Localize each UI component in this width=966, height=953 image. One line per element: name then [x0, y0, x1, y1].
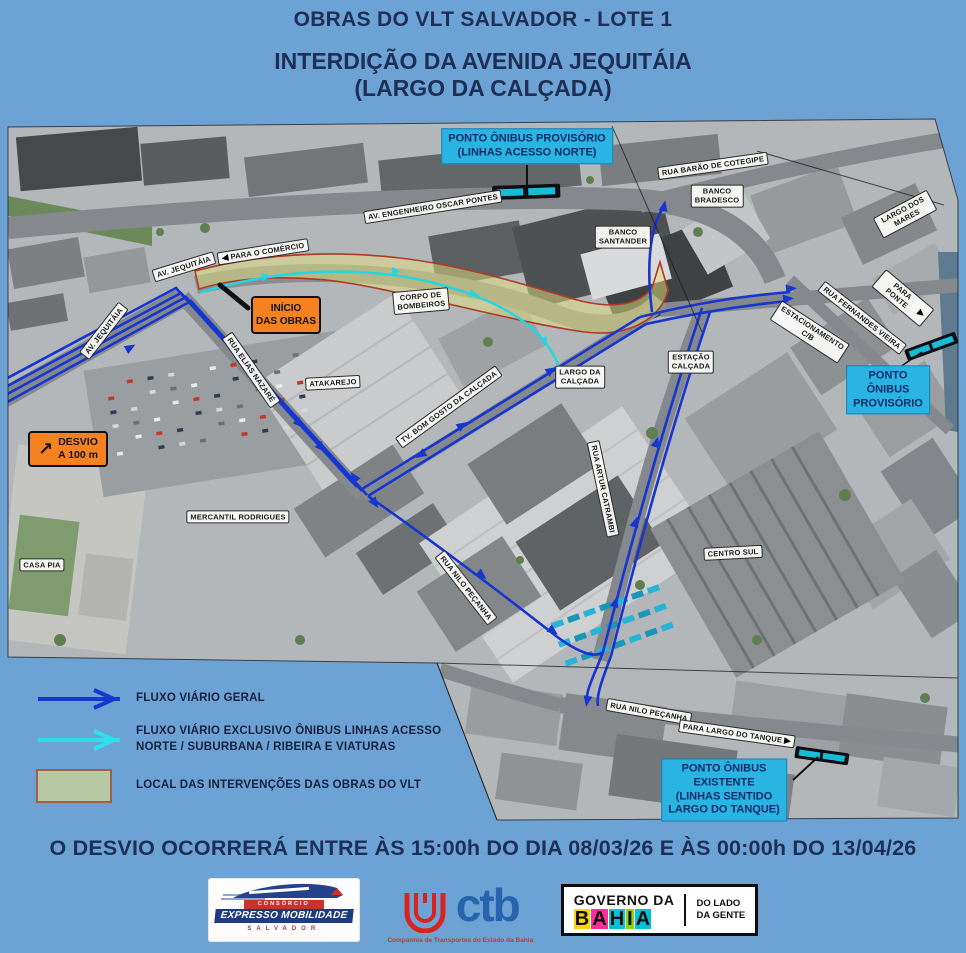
ctb-caption: Companhia de Transportes do Estado da Ba… [365, 937, 555, 944]
page-subtitle-2: (LARGO DA CALÇADA) [0, 75, 966, 102]
legend-item-general-flow: FLUXO VIÁRIO GERAL [36, 688, 471, 710]
governo-tagline: DO LADO DA GENTE [696, 898, 745, 923]
logo-governo-bahia: GOVERNO DA BAHIA DO LADO DA GENTE [561, 884, 758, 936]
blue-flow-arrow-icon [36, 688, 136, 710]
page-subtitle: INTERDIÇÃO DA AVENIDA JEQUITÁIA [0, 48, 966, 75]
footer-logos: CONSÓRCIO EXPRESSO MOBILIDADE SALVADOR c… [0, 878, 966, 942]
train-icon [219, 878, 349, 902]
bahia-wordmark: BAHIA [574, 909, 675, 929]
desvio-text: DESVIO A 100 m [58, 436, 98, 462]
legend: FLUXO VIÁRIO GERAL FLUXO VIÁRIO EXCLUSIV… [36, 688, 471, 817]
page-title: OBRAS DO VLT SALVADOR - LOTE 1 [0, 8, 966, 32]
ctb-wordmark: ctb [456, 882, 519, 928]
legend-item-intervention-zone: LOCAL DAS INTERVENÇÕES DAS OBRAS DO VLT [36, 769, 471, 803]
intervention-zone-swatch [36, 769, 136, 803]
governo-left: GOVERNO DA BAHIA [574, 892, 675, 929]
flyer-page: OBRAS DO VLT SALVADOR - LOTE 1 INTERDIÇÃ… [0, 0, 966, 953]
notice-banner: O DESVIO OCORRERÁ ENTRE ÀS 15:00h DO DIA… [0, 836, 966, 861]
desvio-sign: ↗ DESVIO A 100 m [28, 431, 108, 467]
inicio-obras-line2: DAS OBRAS [256, 315, 316, 328]
ctb-icon [402, 887, 448, 933]
inicio-obras-line1: INÍCIO [271, 302, 302, 315]
divider [684, 894, 686, 926]
logo-expresso-mobilidade: CONSÓRCIO EXPRESSO MOBILIDADE SALVADOR [208, 878, 360, 942]
expresso-band: EXPRESSO MOBILIDADE [214, 909, 353, 923]
salvador-text: SALVADOR [247, 926, 320, 932]
northeast-arrow-icon: ↗ [38, 440, 53, 458]
logo-ctb: ctb Companhia de Transportes do Estado d… [402, 878, 519, 942]
inicio-obras-sign: INÍCIO DAS OBRAS [251, 296, 321, 334]
consorcio-band: CONSÓRCIO [244, 900, 324, 909]
page-header: OBRAS DO VLT SALVADOR - LOTE 1 INTERDIÇÃ… [0, 0, 966, 102]
legend-item-bus-flow: FLUXO VIÁRIO EXCLUSIVO ÔNIBUS LINHAS ACE… [36, 724, 471, 755]
cyan-flow-arrow-icon [36, 729, 136, 751]
